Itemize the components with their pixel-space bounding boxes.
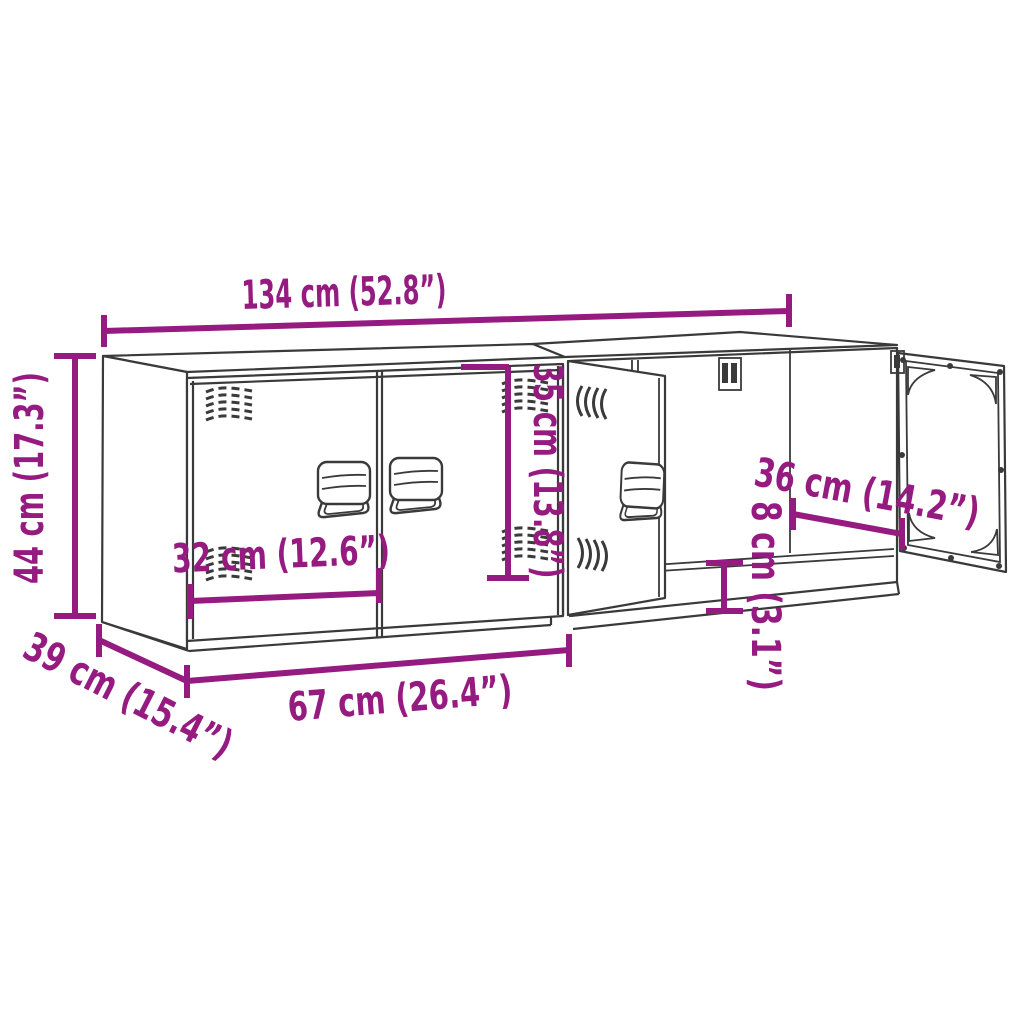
dimension-depth-label: 39 cm (15.4”) bbox=[16, 624, 240, 768]
door-handle bbox=[318, 462, 370, 517]
open-door-left bbox=[568, 361, 665, 615]
dimension-total-width-label: 134 cm (52.8”) bbox=[241, 267, 447, 319]
dimension-height-label: 44 cm (17.3”) bbox=[7, 372, 53, 584]
cabinet-line-drawing: 134 cm (52.8”) 44 cm (17.3”) 39 cm (15.4… bbox=[0, 0, 1024, 1024]
product-dimension-diagram: 134 cm (52.8”) 44 cm (17.3”) 39 cm (15.4… bbox=[0, 0, 1024, 1024]
open-door-right bbox=[891, 351, 1006, 572]
dimension-unit-width: 67 cm (26.4”) bbox=[187, 634, 569, 731]
dimension-door-height-label: 35 cm (13.8”) bbox=[524, 364, 570, 579]
left-side-panel bbox=[102, 356, 187, 649]
dimension-unit-width-label: 67 cm (26.4”) bbox=[286, 667, 514, 731]
door-handle bbox=[620, 462, 665, 523]
dimension-height: 44 cm (17.3”) bbox=[7, 356, 96, 616]
dimension-depth: 39 cm (15.4”) bbox=[16, 624, 240, 768]
dimension-plinth-height-label: 8 cm (3.1”) bbox=[742, 501, 788, 691]
dimension-door-width-label: 32 cm (12.6”) bbox=[171, 527, 391, 582]
door-handle bbox=[390, 458, 442, 513]
